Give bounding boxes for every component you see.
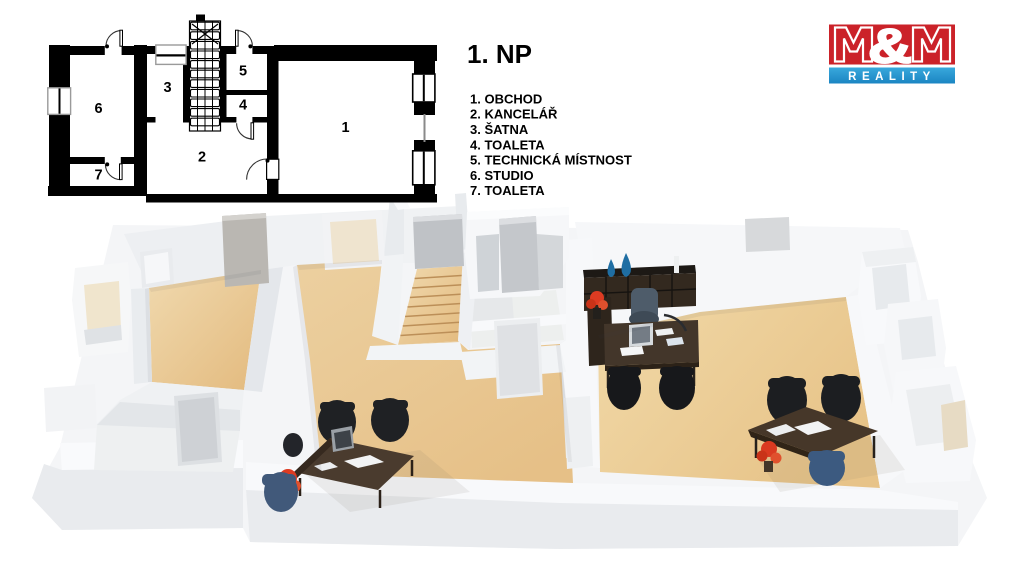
svg-text:1. NP: 1. NP <box>467 39 532 69</box>
svg-text:4. TOALETA: 4. TOALETA <box>470 137 545 152</box>
svg-text:3: 3 <box>163 80 171 96</box>
svg-text:6: 6 <box>94 101 102 117</box>
svg-text:1: 1 <box>341 120 349 136</box>
svg-text:6. STUDIO: 6. STUDIO <box>470 168 534 183</box>
svg-text:&: & <box>868 21 912 74</box>
svg-text:7: 7 <box>94 168 102 184</box>
svg-text:2: 2 <box>198 150 206 166</box>
svg-text:5: 5 <box>239 64 247 80</box>
svg-text:2. KANCELÁŘ: 2. KANCELÁŘ <box>470 107 558 122</box>
svg-text:1. OBCHOD: 1. OBCHOD <box>470 91 542 106</box>
svg-text:5. TECHNICKÁ MÍSTNOST: 5. TECHNICKÁ MÍSTNOST <box>470 153 632 168</box>
svg-text:REALITY: REALITY <box>848 71 936 83</box>
svg-text:4: 4 <box>239 98 247 114</box>
svg-text:7. TOALETA: 7. TOALETA <box>470 183 545 198</box>
svg-text:3. ŠATNA: 3. ŠATNA <box>470 122 529 137</box>
